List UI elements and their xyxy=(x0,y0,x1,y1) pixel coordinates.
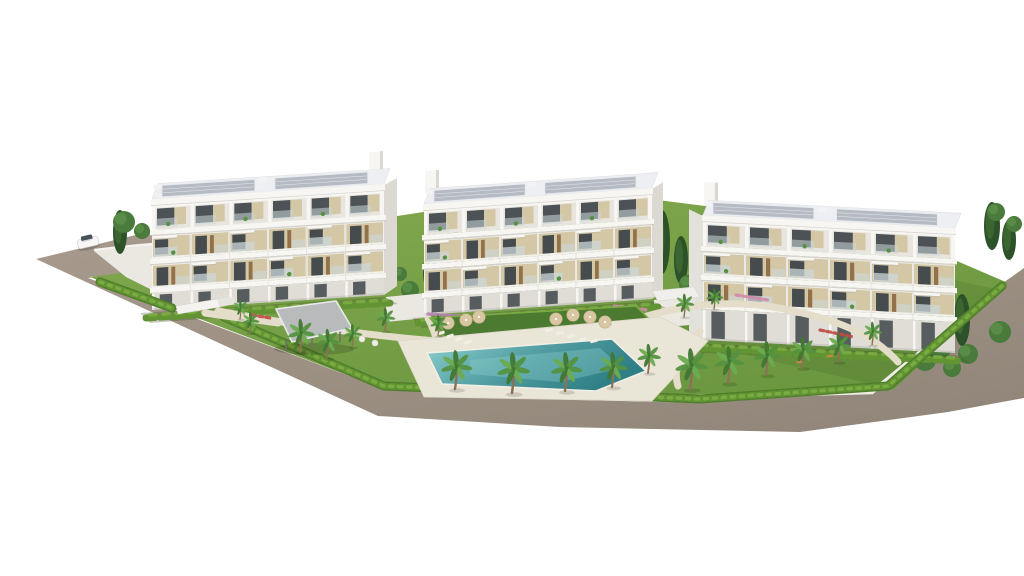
palm-shadow xyxy=(711,309,720,311)
wood-slat xyxy=(557,234,561,252)
palm-shadow xyxy=(323,357,335,360)
tall-window xyxy=(467,240,478,259)
palm-crown xyxy=(455,364,459,368)
bush-highlight xyxy=(680,276,690,286)
ground-door xyxy=(584,288,596,302)
attic-pillar xyxy=(703,223,707,246)
roof-access-box xyxy=(705,201,712,206)
attic-pillar xyxy=(787,227,791,250)
attic-pillar xyxy=(500,206,504,229)
ground-post xyxy=(500,293,503,309)
palm-crown xyxy=(511,367,515,371)
parasol-pole xyxy=(589,316,591,318)
balcony-railing xyxy=(464,278,487,289)
ground-post xyxy=(345,281,348,297)
ground-post xyxy=(462,296,465,312)
bush-highlight xyxy=(115,213,127,225)
attic-pillar xyxy=(614,198,618,221)
palm-shadow xyxy=(797,367,810,371)
juliet-railing xyxy=(897,304,911,313)
palm-crown xyxy=(648,354,651,357)
ground-post xyxy=(268,286,271,302)
palm-shadow xyxy=(834,361,846,364)
palm-crown xyxy=(872,330,874,332)
attic-railing xyxy=(195,215,216,225)
juliet-railing xyxy=(176,276,189,285)
attic-railing xyxy=(749,237,772,247)
palm-shadow xyxy=(761,374,775,378)
palm-shadow xyxy=(381,331,391,334)
juliet-railing xyxy=(813,300,827,309)
ground-post xyxy=(576,288,579,304)
tall-window xyxy=(505,267,516,286)
palm-shadow xyxy=(868,345,878,348)
wood-slat xyxy=(595,261,599,279)
roof-access-box xyxy=(528,182,537,188)
parasol-pole xyxy=(604,321,606,323)
building-left xyxy=(150,150,397,310)
juliet-railing xyxy=(562,243,575,252)
attic-railing xyxy=(707,235,730,245)
tall-window xyxy=(157,267,169,286)
attic-pillar xyxy=(576,201,580,224)
wood-slat xyxy=(519,266,523,284)
palm-crown xyxy=(327,339,330,342)
tall-window xyxy=(918,266,931,285)
palm-crown xyxy=(728,359,732,363)
palm-shadow xyxy=(559,390,575,394)
wood-slat xyxy=(481,240,485,258)
wood-slat xyxy=(210,235,214,253)
palm-crown xyxy=(385,316,387,318)
juliet-railing xyxy=(292,239,305,248)
attic-pillar xyxy=(745,225,749,248)
render-stage: Aerial 3D rendering of a modern resident… xyxy=(0,0,1024,576)
palm-crown xyxy=(689,363,693,367)
attic-corner-pillar xyxy=(648,195,652,219)
wood-slat xyxy=(287,230,291,248)
bush-highlight xyxy=(402,282,412,292)
tall-window xyxy=(350,225,362,244)
tall-window xyxy=(429,272,440,291)
attic-pillar xyxy=(424,212,428,235)
bush-highlight xyxy=(960,346,971,357)
parasol-pole xyxy=(447,322,449,324)
balcony-railing xyxy=(616,267,639,278)
attic-corner-pillar xyxy=(951,235,955,259)
attic-pillar xyxy=(462,209,466,232)
attic-pillar xyxy=(152,207,156,230)
attic-pillar xyxy=(538,204,542,227)
balcony-railing xyxy=(231,241,254,252)
ground-post xyxy=(703,310,706,340)
wood-slat xyxy=(892,294,896,312)
ground-post xyxy=(614,286,617,302)
juliet-railing xyxy=(486,249,499,258)
juliet-railing xyxy=(638,238,651,247)
attic-railing xyxy=(917,246,940,256)
juliet-railing xyxy=(939,277,953,286)
wood-slat xyxy=(934,267,938,285)
palm-shadow xyxy=(449,388,465,392)
attic-pillar xyxy=(913,234,917,257)
balcony-railing xyxy=(193,273,216,284)
attic-pillar xyxy=(829,229,833,252)
palm-crown xyxy=(438,322,440,324)
attic-pillar xyxy=(307,197,311,220)
balcony-railing xyxy=(347,263,370,274)
palm-crown xyxy=(802,348,805,351)
wood-slat xyxy=(443,271,447,289)
ground-post xyxy=(307,284,310,300)
attic-pillar xyxy=(229,202,233,225)
balcony-railing xyxy=(578,241,601,252)
palm-crown xyxy=(250,319,252,321)
attic-pillar xyxy=(345,194,349,217)
palm-shadow xyxy=(644,372,656,375)
tall-window xyxy=(581,261,592,280)
palm-shadow xyxy=(295,351,309,355)
tall-window xyxy=(750,257,763,276)
juliet-railing xyxy=(331,266,344,275)
attic-railing xyxy=(618,209,639,219)
parasol-pole xyxy=(478,316,480,318)
attic-corner-pillar xyxy=(380,191,384,215)
palm-shadow xyxy=(680,317,690,320)
balcony-railing xyxy=(309,236,332,247)
tall-window xyxy=(619,230,630,249)
round-table xyxy=(372,340,378,346)
ground-door xyxy=(470,296,482,310)
attic-pillar xyxy=(191,204,195,227)
ground-post xyxy=(745,312,748,342)
palm-shadow xyxy=(684,388,701,393)
juliet-railing xyxy=(215,244,228,253)
tall-window xyxy=(876,293,889,312)
palm-crown xyxy=(766,353,770,357)
palm-crown xyxy=(300,331,303,334)
ground-post xyxy=(787,314,790,344)
juliet-railing xyxy=(855,273,869,282)
wood-slat xyxy=(249,261,253,279)
ground-post xyxy=(424,299,427,315)
wood-slat xyxy=(365,225,369,243)
palm-crown xyxy=(714,295,716,297)
tall-window xyxy=(834,262,847,281)
building-middle xyxy=(422,154,663,315)
bush-highlight xyxy=(991,323,1003,335)
balcony-railing xyxy=(873,273,898,283)
building-right xyxy=(689,181,961,353)
attic-pillar xyxy=(871,232,875,255)
ground-door xyxy=(237,289,249,303)
palm-shadow xyxy=(607,386,621,390)
attic-railing xyxy=(875,244,898,254)
attic-railing xyxy=(542,214,563,224)
roof-access-box xyxy=(258,177,267,183)
palm-crown xyxy=(838,343,841,346)
palm-shadow xyxy=(247,333,256,335)
tall-window xyxy=(195,235,207,254)
wood-slat xyxy=(808,289,812,307)
palm-crown xyxy=(240,307,242,309)
architectural-render-canvas xyxy=(0,0,1024,576)
wood-slat xyxy=(850,263,854,281)
roof-access-box xyxy=(426,189,433,194)
end-facade xyxy=(689,209,703,340)
tall-window xyxy=(311,257,323,276)
roof-access-box xyxy=(818,206,827,211)
palm-shadow xyxy=(348,347,358,350)
tall-window xyxy=(792,289,805,308)
juliet-railing xyxy=(524,275,537,284)
palm-crown xyxy=(352,332,354,334)
ground-door xyxy=(711,311,724,339)
ground-door xyxy=(753,314,766,342)
wood-slat xyxy=(766,258,770,276)
ground-door xyxy=(276,286,288,300)
juliet-railing xyxy=(448,280,461,289)
palm-crown xyxy=(612,365,616,369)
ground-post xyxy=(538,291,541,307)
palm-shadow xyxy=(237,319,245,321)
ground-door xyxy=(622,285,634,299)
attic-pillar xyxy=(268,199,272,222)
bush-highlight xyxy=(135,224,144,233)
attic-railing xyxy=(466,220,487,230)
bush-highlight xyxy=(1007,217,1016,226)
wood-slat xyxy=(171,266,175,284)
attic-railing xyxy=(349,205,370,215)
ground-door xyxy=(546,291,558,305)
tall-window xyxy=(543,235,554,254)
juliet-railing xyxy=(369,234,382,243)
wood-slat xyxy=(633,229,637,247)
wood-slat xyxy=(326,256,330,274)
bush-highlight xyxy=(988,204,998,214)
juliet-railing xyxy=(771,269,785,278)
ground-door xyxy=(508,293,520,307)
ground-door xyxy=(353,281,365,295)
palm-shadow xyxy=(722,382,737,386)
parasol-pole xyxy=(572,314,574,316)
ground-post xyxy=(913,321,916,351)
palm-shadow xyxy=(435,336,444,338)
roof-access-box xyxy=(154,184,161,189)
attic-railing xyxy=(833,242,856,252)
balcony-railing xyxy=(915,304,940,314)
ground-door xyxy=(432,299,444,313)
balcony-railing xyxy=(789,268,814,278)
tall-window xyxy=(273,230,285,249)
tall-window xyxy=(234,262,246,281)
parasol-pole xyxy=(555,318,557,320)
parasol-pole xyxy=(465,319,467,321)
palm-crown xyxy=(684,302,686,304)
round-table xyxy=(359,336,365,342)
palm-shadow xyxy=(506,392,523,397)
juliet-railing xyxy=(253,271,266,280)
juliet-railing xyxy=(600,270,613,279)
attic-railing xyxy=(272,210,293,220)
attic-railing xyxy=(791,240,814,250)
balcony-railing xyxy=(502,246,525,257)
palm-crown xyxy=(565,366,569,370)
ground-door xyxy=(314,284,326,298)
cypress-highlight xyxy=(675,240,683,274)
